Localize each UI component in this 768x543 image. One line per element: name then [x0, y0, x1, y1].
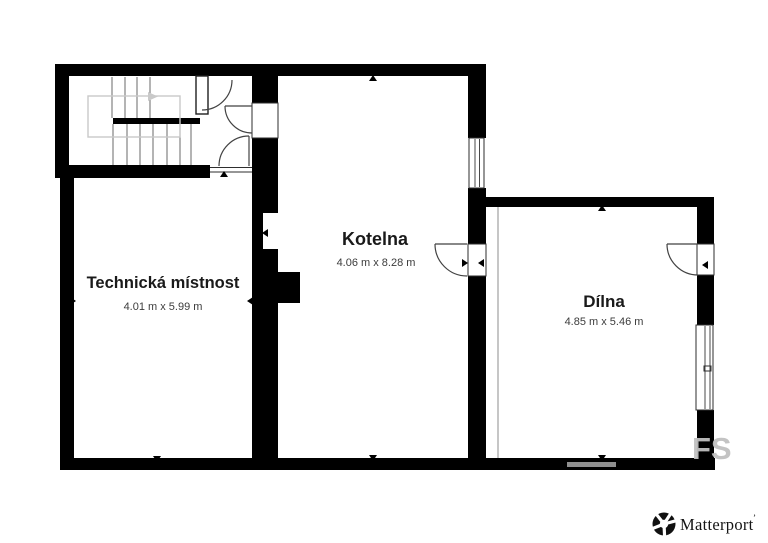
wall-dilna-top	[486, 197, 697, 207]
openings	[210, 103, 714, 276]
matterport-pinwheel-icon	[653, 513, 676, 537]
floor-plan-page: Technická místnost 4.01 m x 5.99 m Kotel…	[0, 0, 768, 543]
window-kotelna-right	[469, 138, 484, 188]
logo-wordmark: Matterport	[680, 515, 754, 534]
wall-kotelna-right-middle	[468, 188, 486, 244]
stair-walk-line	[88, 96, 180, 137]
logo-trademark-mark: ’	[753, 513, 756, 523]
room-label-technicka-mistnost: Technická místnost 4.01 m x 5.99 m	[87, 274, 240, 313]
door-panel	[196, 76, 208, 114]
wall-kotelna-right-lower	[468, 276, 486, 460]
room-name: Technická místnost	[87, 274, 240, 292]
door-stair-landing	[196, 76, 232, 114]
wall-outer-top	[55, 64, 486, 76]
door-stair-to-tech	[219, 136, 249, 166]
wall-outer-left-lower	[60, 165, 74, 470]
wall-tech-kotelna	[252, 138, 278, 460]
stair-steps-upper-flight	[112, 77, 150, 118]
room-name: Dílna	[583, 292, 625, 311]
door-opening-dilna-exterior	[697, 244, 714, 275]
watermark-text: FS	[692, 431, 732, 466]
matterport-logo: Matterport ’	[653, 513, 757, 537]
wall-kotelna-right-upper	[468, 76, 486, 138]
windows	[469, 138, 713, 410]
window-dilna-right	[696, 325, 713, 410]
door-stair-to-kotelna	[225, 106, 252, 133]
wall-dilna-right-upper	[697, 197, 714, 244]
door-opening-stair-kotelna	[252, 103, 278, 138]
wall-pilaster	[278, 272, 300, 303]
wall-stair-kotelna-upper	[252, 76, 278, 103]
tick-kotelna-right	[462, 259, 468, 267]
door-dilna-right	[667, 244, 698, 275]
stair-direction-arrow-icon	[148, 92, 158, 101]
room-label-dilna: Dílna 4.85 m x 5.46 m	[565, 292, 644, 328]
tick-tech-right	[247, 297, 253, 305]
watermark-bar	[567, 462, 616, 467]
room-label-kotelna: Kotelna 4.06 m x 8.28 m	[337, 229, 416, 269]
wall-stair-bottom	[57, 165, 210, 178]
wall-outer-left-upper	[55, 64, 69, 178]
room-dimensions: 4.06 m x 8.28 m	[337, 257, 416, 269]
room-name: Kotelna	[342, 229, 409, 249]
room-dimensions: 4.01 m x 5.99 m	[124, 301, 203, 313]
room-dimensions: 4.85 m x 5.46 m	[565, 316, 644, 328]
stair-divider-bar	[113, 118, 200, 124]
wall-dilna-right-middle	[697, 275, 714, 325]
floor-plan-canvas: Technická místnost 4.01 m x 5.99 m Kotel…	[0, 0, 768, 543]
